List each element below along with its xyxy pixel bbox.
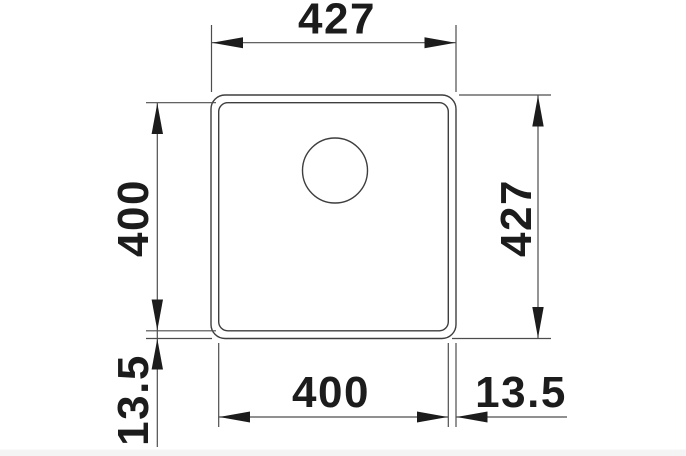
sink-dimension-diagram: 427 400 13.5 427 400 13.5 bbox=[0, 0, 686, 456]
dim-label-right-height: 427 bbox=[492, 179, 541, 257]
dim-label-bottom-bowl-width: 400 bbox=[292, 368, 370, 417]
arrowhead-left-down-icon bbox=[152, 300, 163, 331]
sink-outline-group bbox=[211, 95, 456, 339]
technical-drawing-canvas: 427 400 13.5 427 400 13.5 bbox=[0, 0, 686, 456]
page-bottom-band bbox=[0, 450, 686, 456]
arrowhead-bottom-left-icon bbox=[219, 412, 250, 423]
arrowhead-bottom-right-icon bbox=[417, 412, 448, 423]
arrowhead-top-left-icon bbox=[212, 37, 243, 48]
arrowhead-right-down-icon bbox=[532, 307, 543, 338]
sink-inner-bowl-edge bbox=[219, 103, 449, 331]
dimension-labels-group: 427 400 13.5 427 400 13.5 bbox=[109, 0, 567, 446]
dim-label-bottom-rim-offset: 13.5 bbox=[475, 368, 567, 417]
sink-outer-edge bbox=[211, 95, 456, 339]
dim-label-left-rim-offset: 13.5 bbox=[109, 354, 158, 446]
dim-label-left-bowl-height: 400 bbox=[109, 179, 158, 257]
arrowhead-top-right-icon bbox=[425, 37, 456, 48]
arrowhead-left-up-icon bbox=[152, 103, 163, 134]
drain-hole bbox=[303, 138, 368, 203]
arrowhead-right-up-icon bbox=[532, 96, 543, 127]
dim-label-top-width: 427 bbox=[298, 0, 376, 44]
